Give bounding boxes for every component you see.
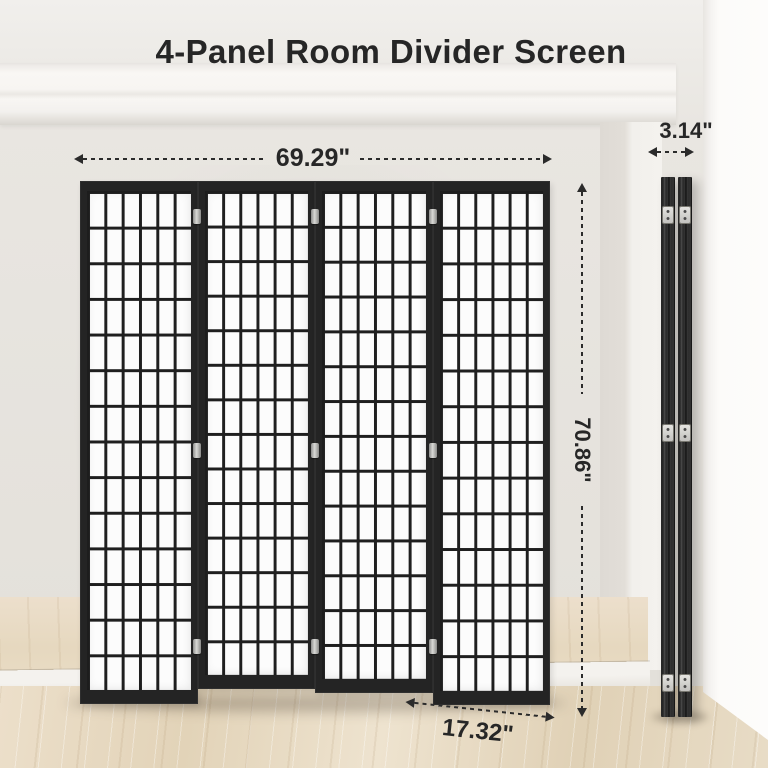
folded-panel-stack — [661, 177, 675, 717]
width-dimension: 69.29" — [74, 144, 552, 173]
room-divider-screen — [80, 181, 550, 708]
hinge — [193, 209, 201, 224]
hinge — [663, 425, 673, 441]
shoji-grid — [87, 191, 191, 690]
hinge — [311, 639, 319, 654]
shoji-grid — [440, 191, 544, 691]
folded-panel-stack — [678, 177, 692, 717]
height-dimension-label: 70.86" — [569, 417, 595, 482]
divider-panel-4 — [433, 181, 551, 705]
divider-panel-1 — [80, 181, 198, 704]
hinge — [193, 639, 201, 654]
hinge — [429, 639, 437, 654]
page-title: 4-Panel Room Divider Screen — [0, 33, 768, 71]
dashed-line — [581, 506, 583, 708]
product-dimension-image: 4-Panel Room Divider Screen 69.29" 3.14"… — [0, 0, 768, 768]
hinge — [680, 425, 690, 441]
hinge — [680, 207, 690, 223]
arrow-right-icon — [685, 147, 694, 157]
depth-dimension-arrow — [648, 147, 694, 157]
hinge — [311, 443, 319, 458]
dashed-line — [83, 158, 266, 160]
arrow-up-icon — [577, 183, 587, 192]
hinge — [429, 443, 437, 458]
hinge — [680, 675, 690, 691]
doorway-wall-edge — [600, 122, 662, 670]
hinge — [663, 207, 673, 223]
hinge — [429, 209, 437, 224]
crown-molding — [0, 63, 676, 125]
divider-panel-3 — [315, 181, 433, 693]
width-dimension-label: 69.29" — [276, 144, 350, 173]
height-dimension: 70.86" — [570, 183, 594, 717]
arrow-right-icon — [543, 154, 552, 164]
depth-dimension-label: 3.14" — [659, 118, 712, 143]
dashed-line — [360, 158, 543, 160]
arrow-down-icon — [577, 708, 587, 717]
arrow-left-icon — [74, 154, 83, 164]
shoji-grid — [322, 191, 426, 679]
white-wall-pillar — [703, 0, 768, 745]
folded-divider-side-view — [661, 177, 692, 717]
arrow-right-icon — [545, 712, 555, 723]
dashed-line — [657, 151, 685, 153]
divider-panel-2 — [198, 181, 316, 689]
shoji-grid — [205, 191, 309, 675]
hinge — [311, 209, 319, 224]
height-dimension-label-wrap: 70.86" — [570, 394, 594, 506]
arrow-left-icon — [648, 147, 657, 157]
dashed-line — [581, 192, 583, 394]
depth-dimension: 3.14" — [642, 118, 730, 157]
hinge — [193, 443, 201, 458]
hinge — [663, 675, 673, 691]
